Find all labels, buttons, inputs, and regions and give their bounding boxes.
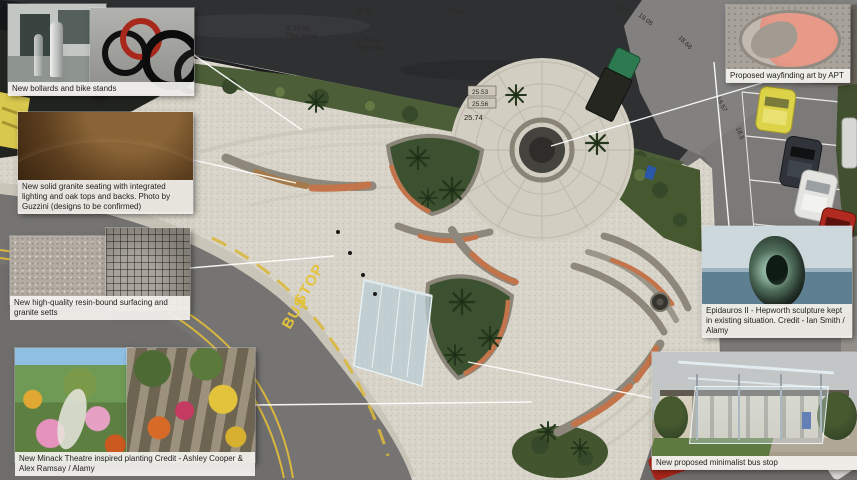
callout-granite-seating: New solid granite seating with integrate… (18, 112, 193, 214)
callout-wayfinding: Proposed wayfinding art by APT (726, 5, 850, 83)
callout-bollards: New bollards and bike stands (8, 4, 194, 96)
presentation-board: BUS STOP (0, 0, 857, 480)
resin-surfacing-photo (10, 236, 112, 304)
callout-caption: Proposed wayfinding art by APT (726, 69, 850, 83)
sculpture-icon (749, 236, 805, 308)
garden-steps-photo (127, 348, 255, 462)
svg-text:25.56: 25.56 (472, 101, 489, 108)
minack-garden-photo (15, 348, 133, 462)
bollard-icon (50, 22, 63, 77)
svg-text:Pipe Invert: Pipe Invert (356, 44, 387, 52)
bus-stop-photo (652, 352, 857, 468)
glass-shelter-wall (689, 386, 829, 444)
hepworth-sculpture-marker (651, 293, 669, 311)
callout-caption: New solid granite seating with integrate… (18, 180, 193, 214)
svg-text:Pipe Invert: Pipe Invert (286, 32, 317, 40)
tree-icon (654, 396, 688, 440)
callout-caption: New high-quality resin-bound surfacing a… (10, 296, 190, 320)
callout-caption: New bollards and bike stands (8, 82, 194, 96)
bus-shelter-canopy (354, 280, 432, 386)
svg-text:25.74: 25.74 (464, 113, 483, 122)
callout-sculpture: Epidauros II - Hepworth sculpture kept i… (702, 226, 852, 338)
callout-bus-stop: New proposed minimalist bus stop (652, 352, 857, 470)
wayfinding-oval-icon (739, 10, 841, 70)
wayfinding-swirl (746, 17, 801, 62)
car-yellow (755, 86, 797, 135)
bollard-icon (34, 34, 43, 76)
svg-text:25.53: 25.53 (472, 89, 489, 96)
canopy-roof-edge (678, 361, 834, 375)
sculpture-hole (766, 255, 788, 285)
callout-caption: Epidauros II - Hepworth sculpture kept i… (702, 304, 852, 338)
van-white (842, 118, 857, 168)
garden-path (52, 386, 92, 452)
callout-planting: New Minack Theatre inspired planting Cre… (15, 348, 255, 476)
callout-paving: New high-quality resin-bound surfacing a… (10, 228, 190, 320)
callout-caption: New Minack Theatre inspired planting Cre… (15, 452, 255, 476)
callout-caption: New proposed minimalist bus stop (652, 456, 857, 470)
